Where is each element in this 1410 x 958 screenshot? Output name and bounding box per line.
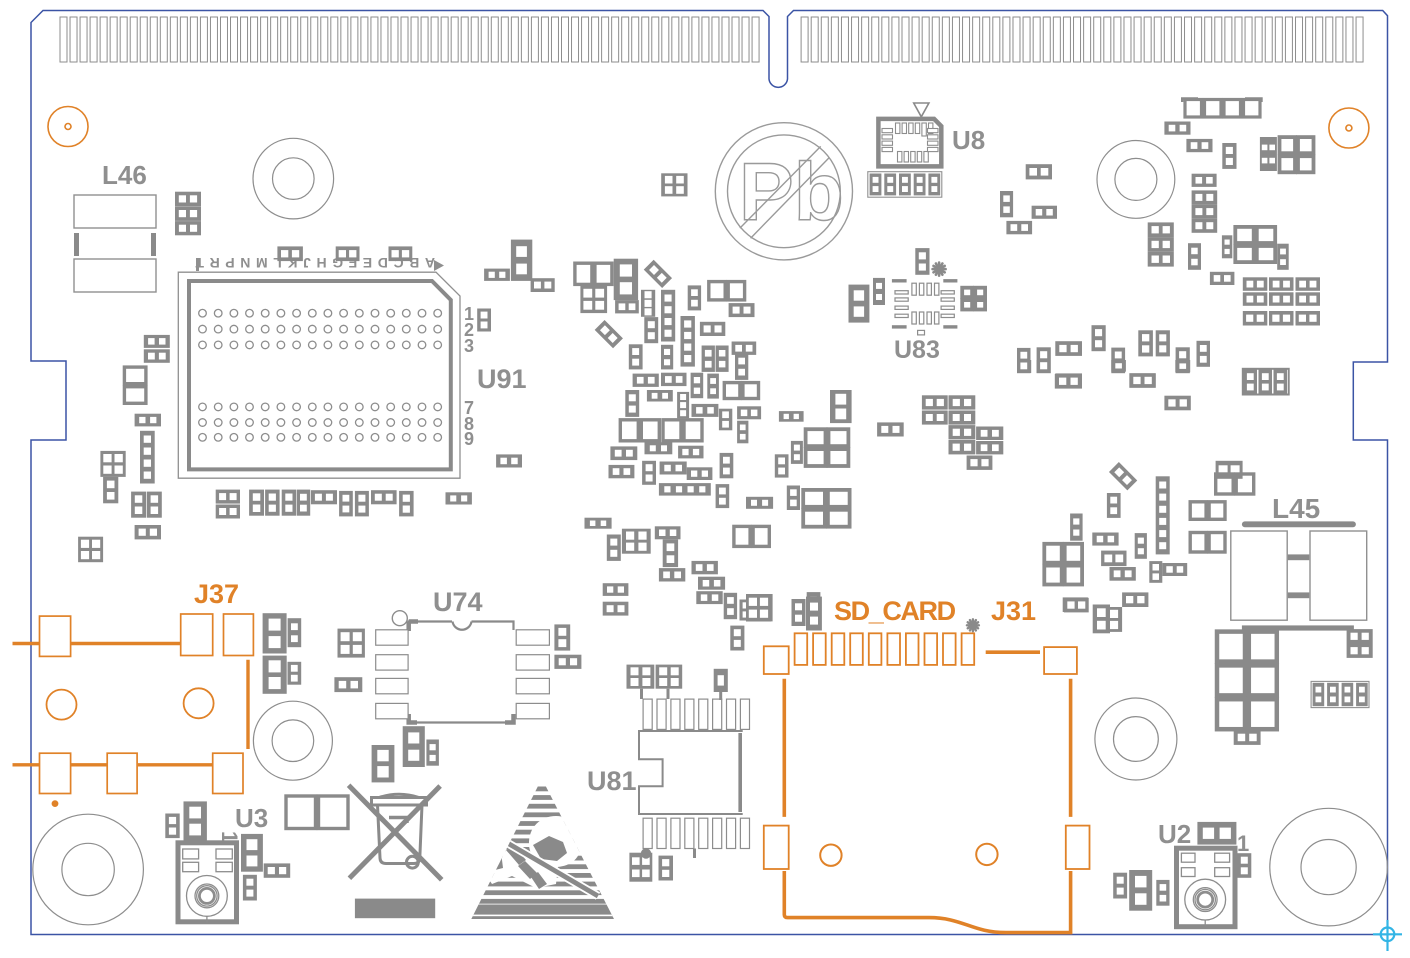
svg-text:J31: J31 — [991, 596, 1036, 626]
svg-text:U91: U91 — [477, 364, 527, 394]
svg-text:9: 9 — [464, 429, 474, 449]
svg-text:U2: U2 — [1158, 819, 1191, 849]
svg-text:3: 3 — [464, 336, 474, 356]
svg-text:L45: L45 — [1272, 493, 1320, 524]
svg-text:U83: U83 — [894, 336, 940, 364]
svg-text:Pb: Pb — [739, 147, 844, 238]
svg-text:SD_CARD: SD_CARD — [834, 596, 956, 626]
svg-text:U81: U81 — [587, 766, 637, 796]
svg-text:U8: U8 — [952, 125, 985, 155]
svg-text:J37: J37 — [194, 579, 239, 609]
svg-text:U74: U74 — [433, 587, 483, 617]
svg-text:L46: L46 — [102, 160, 147, 190]
svg-text:1: 1 — [1237, 831, 1249, 856]
svg-text:U3: U3 — [235, 803, 268, 833]
